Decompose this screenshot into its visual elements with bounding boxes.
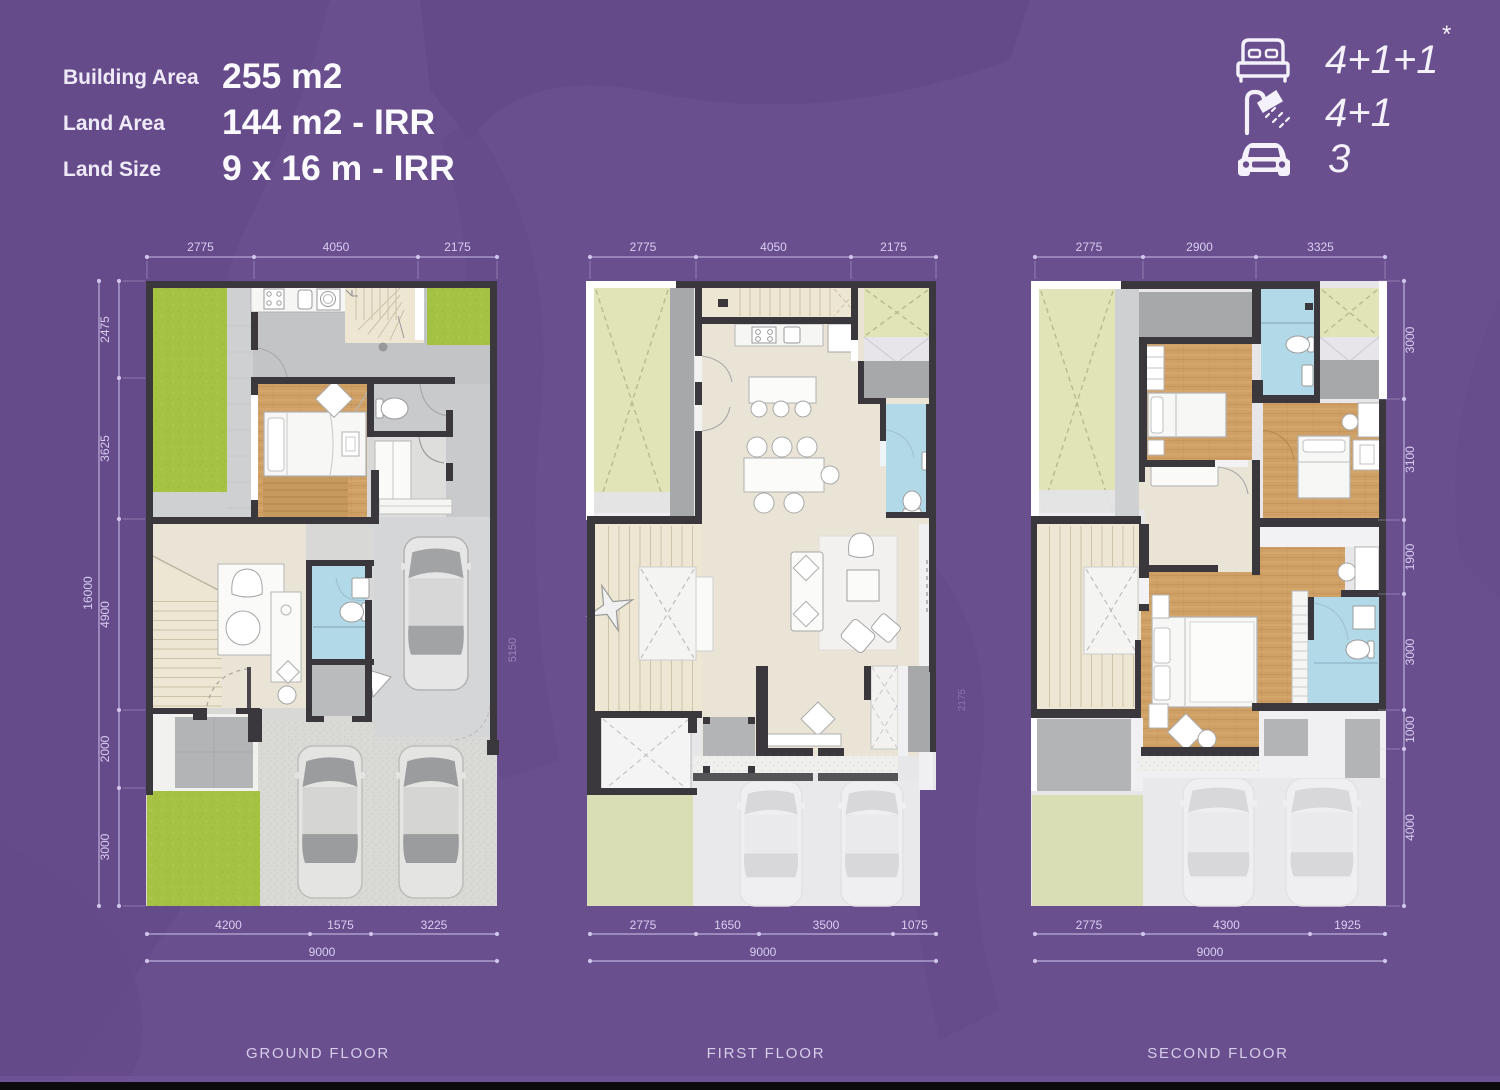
svg-text:2175: 2175 (880, 240, 907, 254)
svg-text:9000: 9000 (1197, 945, 1224, 959)
svg-text:Land Area: Land Area (63, 112, 165, 135)
svg-text:Building Area: Building Area (63, 66, 199, 89)
svg-text:9 x 16 m - IRR: 9 x 16 m - IRR (222, 148, 455, 188)
svg-text:2475: 2475 (98, 316, 112, 343)
svg-text:5150: 5150 (507, 638, 519, 662)
svg-text:1000: 1000 (1403, 716, 1417, 743)
svg-text:3325: 3325 (1307, 240, 1334, 254)
svg-text:2900: 2900 (1186, 240, 1213, 254)
svg-text:4900: 4900 (98, 601, 112, 628)
svg-text:2775: 2775 (630, 240, 657, 254)
svg-text:4300: 4300 (1213, 918, 1240, 932)
svg-text:3100: 3100 (1403, 446, 1417, 473)
svg-text:2775: 2775 (1076, 240, 1103, 254)
svg-text:2000: 2000 (98, 735, 112, 762)
svg-text:2175: 2175 (957, 688, 968, 711)
svg-text:1925: 1925 (1334, 918, 1361, 932)
svg-text:1075: 1075 (901, 918, 928, 932)
svg-text:255 m2: 255 m2 (222, 56, 342, 96)
svg-text:3000: 3000 (98, 833, 112, 860)
svg-text:1650: 1650 (714, 918, 741, 932)
svg-text:9000: 9000 (750, 945, 777, 959)
svg-text:FIRST FLOOR: FIRST FLOOR (707, 1045, 826, 1062)
svg-text:4050: 4050 (760, 240, 787, 254)
svg-text:3: 3 (1328, 137, 1350, 181)
svg-text:4000: 4000 (1403, 814, 1417, 841)
svg-text:3000: 3000 (1403, 326, 1417, 353)
svg-text:4050: 4050 (323, 240, 350, 254)
svg-text:144 m2 - IRR: 144 m2 - IRR (222, 102, 435, 142)
svg-text:Land Size: Land Size (63, 158, 161, 181)
svg-text:*: * (1441, 21, 1451, 48)
svg-text:3000: 3000 (1403, 638, 1417, 665)
svg-text:1575: 1575 (327, 918, 354, 932)
svg-text:SECOND FLOOR: SECOND FLOOR (1147, 1045, 1289, 1062)
svg-text:2175: 2175 (444, 240, 471, 254)
svg-text:2775: 2775 (187, 240, 214, 254)
svg-text:9000: 9000 (309, 945, 336, 959)
svg-text:3625: 3625 (98, 435, 112, 462)
svg-text:3225: 3225 (421, 918, 448, 932)
svg-text:4+1: 4+1 (1325, 91, 1393, 135)
svg-text:2775: 2775 (630, 918, 657, 932)
svg-text:GROUND FLOOR: GROUND FLOOR (246, 1045, 390, 1062)
svg-text:1900: 1900 (1403, 543, 1417, 570)
svg-text:16000: 16000 (81, 576, 95, 610)
svg-text:2775: 2775 (1076, 918, 1103, 932)
svg-text:4200: 4200 (215, 918, 242, 932)
svg-text:3500: 3500 (813, 918, 840, 932)
svg-text:4+1+1: 4+1+1 (1325, 38, 1438, 82)
